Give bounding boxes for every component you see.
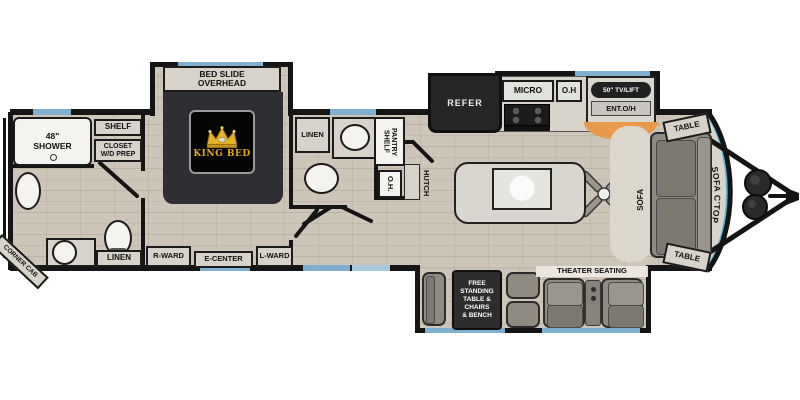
- mid-oh-cabinet: O.H.: [378, 170, 402, 198]
- closet-label: CLOSET W/D PREP: [101, 143, 136, 158]
- l-ward-label: L-WARD: [260, 252, 290, 260]
- table-top-label: TABLE: [673, 121, 700, 135]
- tv-lift-cabinet: 50" TV/LIFT ENT.O/H: [586, 76, 656, 124]
- window: [542, 328, 640, 333]
- seat-cushion: [608, 282, 644, 306]
- closet-wd-prep: CLOSET W/D PREP: [94, 139, 142, 162]
- mid-toilet: [304, 163, 339, 194]
- tv-lift: 50" TV/LIFT: [591, 82, 651, 98]
- hutch-text: HUTCH: [422, 170, 430, 196]
- tv-lift-label: 50" TV/LIFT: [603, 87, 639, 94]
- pantry-door: [413, 142, 432, 161]
- king-bed-label: KING BED: [193, 149, 250, 159]
- mid-bath-sink: [340, 124, 370, 151]
- seat-cushion: [547, 282, 583, 306]
- hitch-coupler: [786, 188, 799, 205]
- bed-slide-label: BED SLIDE OVERHEAD: [198, 70, 246, 88]
- e-center-label: E-CENTER: [204, 255, 242, 263]
- shower-drain-icon: [50, 154, 57, 161]
- sofa: [650, 132, 712, 258]
- refer-label: REFER: [447, 98, 483, 108]
- microwave: MICRO: [502, 80, 554, 102]
- bath-door: [100, 163, 137, 196]
- mid-linen-label: LINEN: [301, 131, 324, 139]
- wall: [150, 62, 155, 116]
- mid-oh-label: O.H.: [386, 176, 394, 191]
- cupholder-icon: [591, 287, 596, 292]
- wall: [289, 205, 347, 209]
- bath-shelf: SHELF: [94, 119, 142, 136]
- rv-floorplan: SOFA C'TOP: [0, 0, 800, 400]
- dinette-bench: [422, 272, 446, 326]
- king-bed-crown-panel: KING BED: [189, 110, 255, 174]
- sofa-back: [697, 137, 711, 255]
- micro-label: MICRO: [514, 86, 542, 95]
- shower-label: 48" SHOWER: [33, 132, 71, 150]
- theater-seating-label-wrap: THEATER SEATING: [536, 266, 648, 277]
- wall: [288, 62, 293, 116]
- range-cooktop: [504, 104, 550, 126]
- dinette-chair: [506, 272, 540, 299]
- rear-linen-label: LINEN: [107, 254, 131, 263]
- theater-console: [585, 280, 601, 326]
- mid-linen: LINEN: [295, 117, 330, 153]
- hutch-label: HUTCH: [419, 163, 433, 203]
- propane-tank-2: [743, 195, 767, 219]
- wall: [10, 109, 152, 115]
- table-bottom-label: TABLE: [673, 251, 700, 265]
- bed-slide-header: BED SLIDE OVERHEAD: [163, 66, 281, 92]
- bench-back: [426, 276, 435, 324]
- theater-seat-right: [601, 278, 643, 328]
- l-ward: L-WARD: [256, 246, 293, 267]
- free-standing-table: FREE STANDING TABLE & CHAIRS & BENCH: [452, 270, 502, 330]
- refrigerator: REFER: [428, 73, 502, 133]
- rear-bath-sink: [15, 172, 41, 210]
- wall: [415, 265, 420, 333]
- theater-seating-label: THEATER SEATING: [557, 267, 627, 275]
- window: [33, 109, 71, 115]
- sofa-label: SOFA: [637, 189, 646, 211]
- ent-oh-cabinet: ENT.O/H: [591, 101, 651, 116]
- r-ward: R-WARD: [146, 246, 191, 267]
- cupholder-icon: [591, 296, 596, 301]
- bath-shelf-label: SHELF: [105, 123, 131, 132]
- sofa-label-wrap: SOFA: [634, 176, 648, 224]
- seat-back: [547, 305, 583, 328]
- r-ward-label: R-WARD: [153, 252, 184, 260]
- wall: [289, 113, 293, 209]
- sofa-cushion: [656, 140, 696, 197]
- pantry-label: PANTRY SHELF: [382, 128, 397, 156]
- ent-oh-label: ENT.O/H: [606, 104, 636, 113]
- propane-tank-2-highlight: [748, 200, 756, 208]
- pantry-shelf: PANTRY SHELF: [374, 117, 405, 166]
- propane-tank-1-highlight: [750, 175, 760, 185]
- range-base: [504, 126, 550, 131]
- free-standing-label: FREE STANDING TABLE & CHAIRS & BENCH: [460, 280, 493, 321]
- kitchen-oh-cabinet: O.H: [556, 80, 582, 102]
- kitchen-oh-label: O.H: [562, 87, 576, 96]
- e-center: E-CENTER: [194, 251, 253, 268]
- window: [330, 109, 376, 115]
- seat-back: [608, 305, 644, 328]
- hutch-counter: [404, 164, 420, 200]
- theater-seat-left: [543, 278, 585, 328]
- vanity-sink: [52, 240, 77, 265]
- entry-door-window: [352, 265, 390, 271]
- crown-icon: [202, 125, 242, 149]
- hall-door: [344, 208, 371, 221]
- dinette-chair: [506, 301, 540, 328]
- island-sink: [492, 168, 552, 210]
- window: [303, 265, 350, 271]
- rear-linen: LINEN: [96, 250, 142, 267]
